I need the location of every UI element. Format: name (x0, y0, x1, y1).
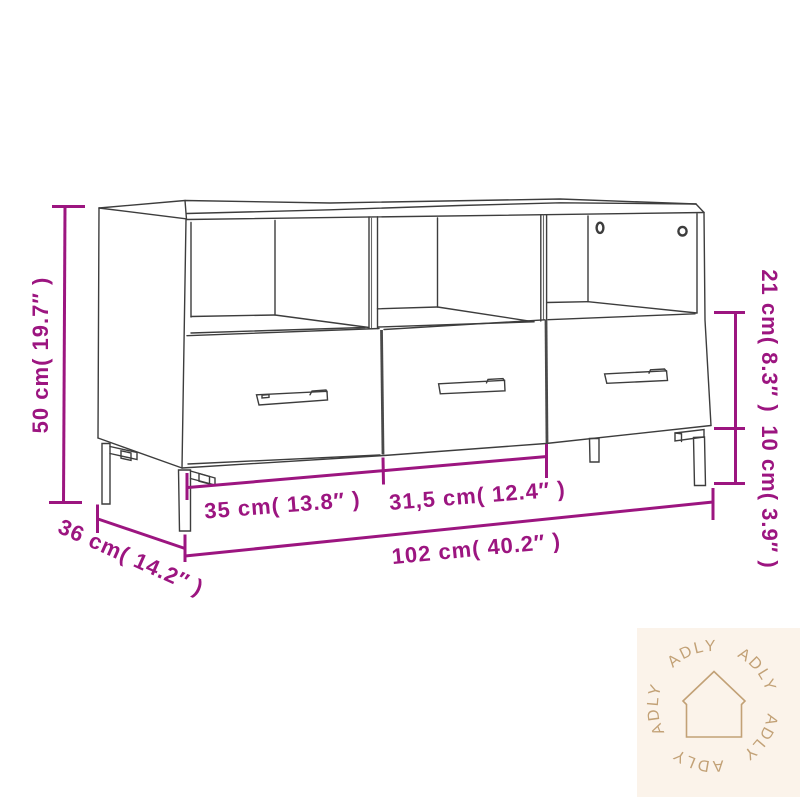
svg-text:50 cm( 19.7″ ): 50 cm( 19.7″ ) (28, 277, 53, 434)
svg-text:10 cm( 3.9″ ): 10 cm( 3.9″ ) (757, 425, 782, 568)
svg-text:21 cm( 8.3″ ): 21 cm( 8.3″ ) (757, 269, 782, 412)
